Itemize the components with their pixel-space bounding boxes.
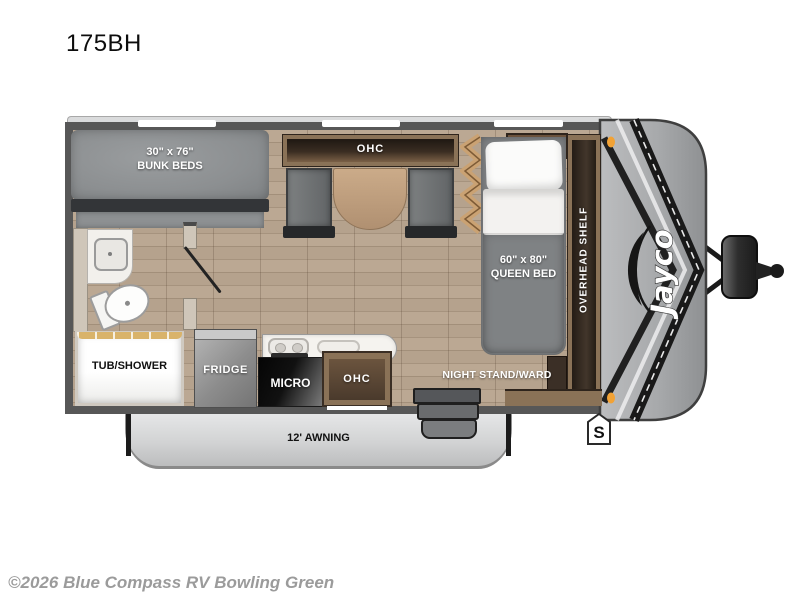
dinette-overhead-cabinet: OHC bbox=[282, 134, 459, 167]
bunk-size-text: 30" x 76" bbox=[71, 146, 269, 160]
kitchen-cabinet-sill bbox=[327, 406, 387, 410]
stabilizer-badge: S bbox=[587, 413, 611, 445]
bath-wall-stub-top bbox=[183, 222, 197, 249]
bed-pillow bbox=[485, 140, 563, 193]
floorplan-page: 175BH 12' AWNING 30" x 76" BUNK BEDS TUB… bbox=[0, 0, 800, 600]
bath-sink-icon bbox=[94, 238, 128, 271]
front-cap: Jayco bbox=[598, 114, 788, 426]
bunk-text: BUNK BEDS bbox=[71, 160, 269, 174]
page-title: 175BH bbox=[66, 30, 142, 58]
dinette-bench-left bbox=[286, 168, 332, 228]
fridge: FRIDGE bbox=[194, 329, 257, 408]
dinette-ohc-label: OHC bbox=[283, 143, 458, 157]
window-dinette bbox=[322, 120, 400, 127]
microwave: MICRO bbox=[258, 357, 323, 407]
marker-light-top bbox=[607, 137, 615, 148]
night-stand-label: NIGHT STAND/WARD bbox=[437, 369, 557, 382]
bunk-lower bbox=[76, 212, 264, 228]
dealer-copyright: ©2026 Blue Compass RV Bowling Green bbox=[8, 573, 334, 593]
overhead-shelf-label: OVERHEAD SHELF bbox=[569, 180, 599, 340]
hitch-icon bbox=[704, 236, 784, 298]
entry-step-2 bbox=[417, 403, 479, 420]
tub-shower-label: TUB/SHOWER bbox=[75, 360, 184, 372]
bunk-rail bbox=[71, 199, 269, 212]
bed-comforter bbox=[483, 233, 564, 353]
marker-light-bottom bbox=[607, 393, 615, 404]
dinette-bench-right bbox=[408, 168, 454, 228]
kitchen-overhead-cabinet: OHC bbox=[322, 351, 392, 407]
queen-text: QUEEN BED bbox=[483, 268, 564, 282]
window-bed bbox=[494, 120, 563, 127]
dinette-bench-base-right bbox=[405, 226, 457, 238]
dinette-bench-base-left bbox=[283, 226, 335, 238]
wardrobe-base-cabinet bbox=[505, 389, 602, 406]
kitchen-ohc-label: OHC bbox=[324, 373, 390, 387]
bath-wall-stub-bottom bbox=[183, 298, 197, 330]
bunk-label: 30" x 76" BUNK BEDS bbox=[71, 146, 269, 174]
brand-logo: Jayco bbox=[645, 229, 679, 320]
entry-step-1 bbox=[413, 388, 481, 404]
bath-wall-trim bbox=[73, 228, 88, 332]
queen-size-text: 60" x 80" bbox=[483, 254, 564, 268]
stabilizer-badge-letter: S bbox=[593, 423, 604, 442]
shower-curtain bbox=[77, 332, 182, 339]
micro-label: MICRO bbox=[259, 376, 322, 391]
queen-bed-label: 60" x 80" QUEEN BED bbox=[483, 254, 564, 282]
fridge-label: FRIDGE bbox=[195, 364, 256, 378]
bed-blanket bbox=[483, 189, 564, 235]
entry-step-3 bbox=[421, 419, 477, 439]
window-bunk bbox=[138, 120, 216, 127]
